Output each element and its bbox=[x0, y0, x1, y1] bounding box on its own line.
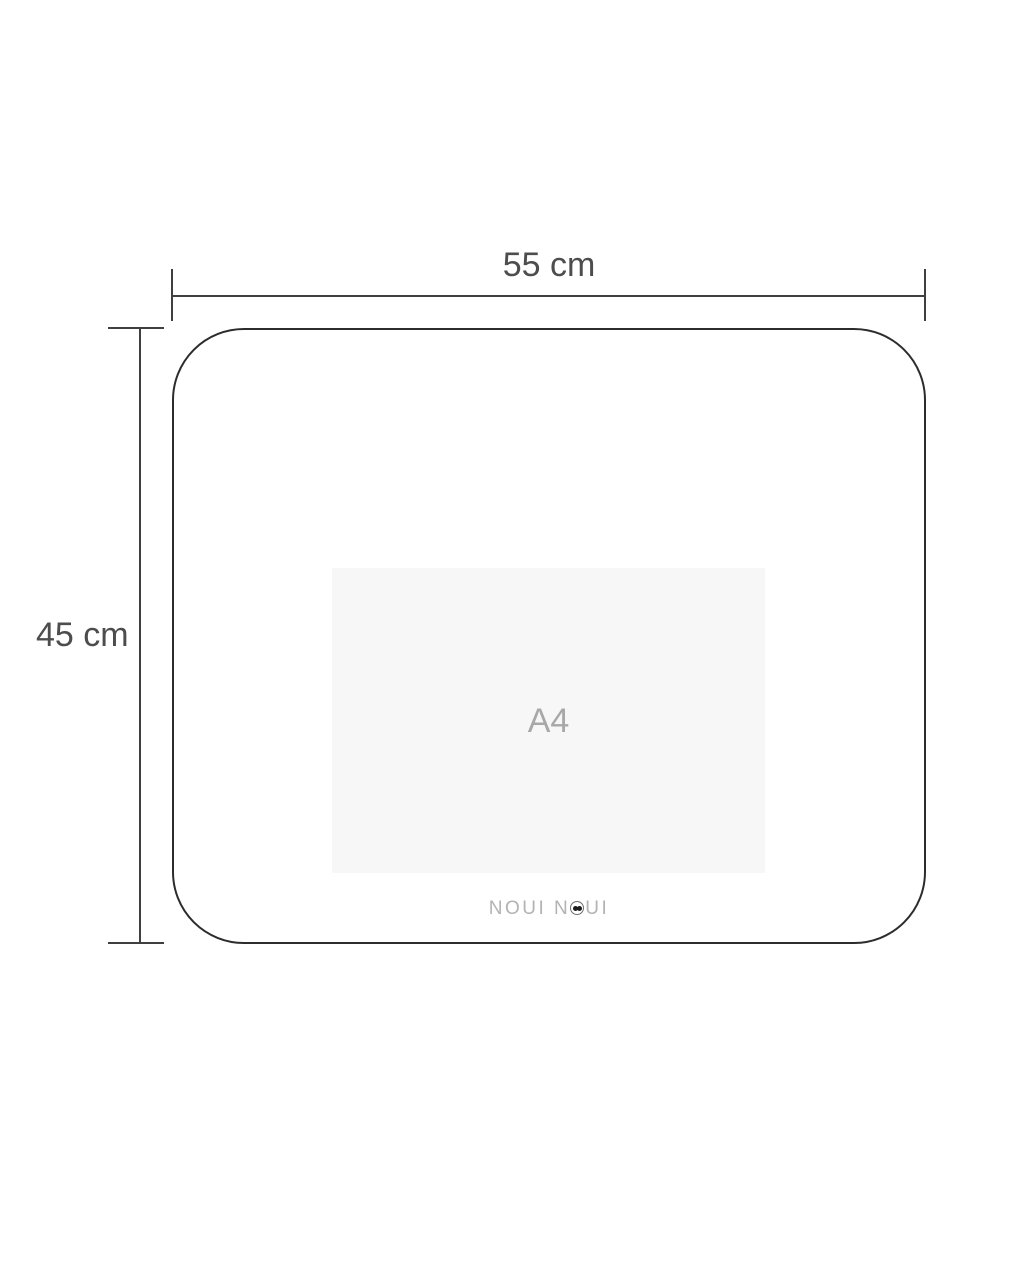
eye-dot-right bbox=[577, 906, 582, 911]
a4-label: A4 bbox=[528, 704, 570, 738]
noui-o-eyes-icon bbox=[570, 901, 584, 915]
a4-size-reference: A4 bbox=[332, 568, 765, 873]
height-dimension-label: 45 cm bbox=[36, 618, 129, 652]
brand-logo-text-left: NOUI N bbox=[489, 899, 571, 918]
height-dimension-tick-bottom bbox=[108, 942, 164, 944]
width-dimension-tick-left bbox=[171, 269, 173, 321]
width-dimension-tick-right bbox=[924, 269, 926, 321]
height-dimension-tick-top bbox=[108, 327, 164, 329]
dimension-diagram: 55 cm 45 cm A4 NOUI N UI bbox=[0, 0, 1024, 1280]
brand-logo-text-right: UI bbox=[585, 899, 609, 918]
brand-logo: NOUI N UI bbox=[172, 896, 926, 920]
width-dimension-line bbox=[172, 295, 926, 297]
height-dimension-line bbox=[139, 328, 141, 944]
width-dimension-label: 55 cm bbox=[172, 248, 926, 282]
